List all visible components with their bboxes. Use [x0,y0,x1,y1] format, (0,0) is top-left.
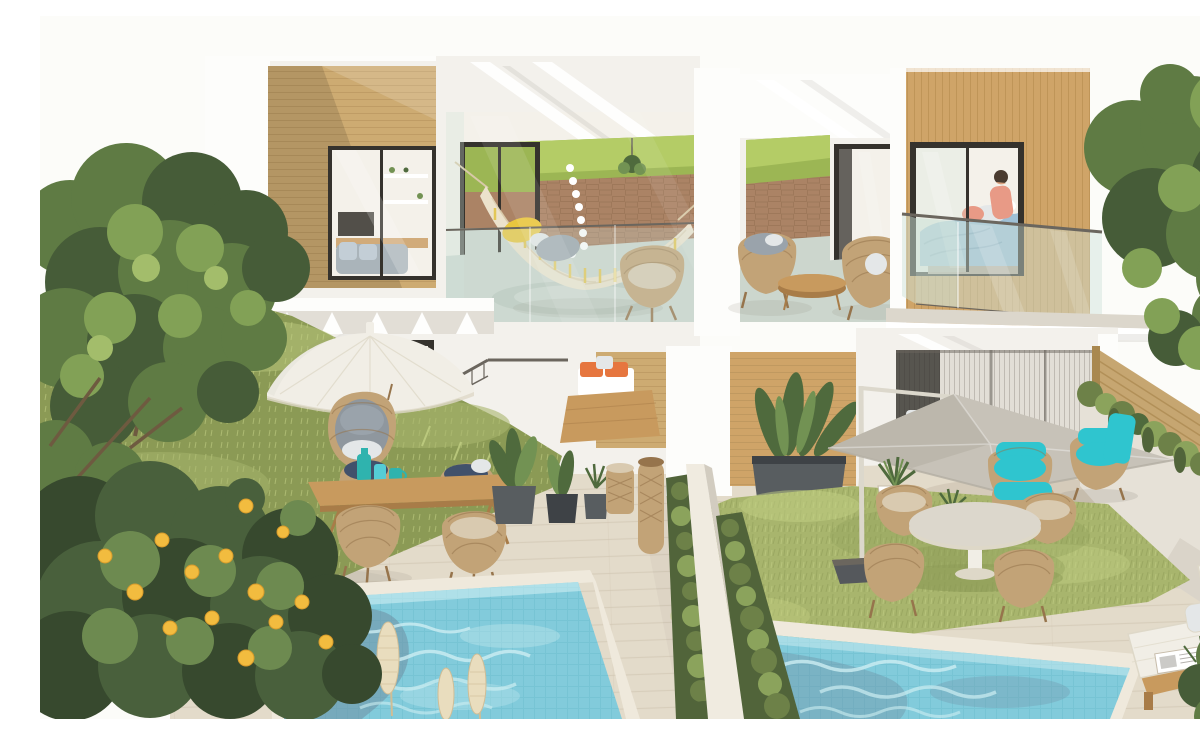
central-column-upper [694,68,740,336]
shelf [384,174,428,178]
left-balcony [436,56,700,322]
shelf [384,200,428,204]
bedroom-glass-balustrade [902,214,1102,320]
wicker-stool [606,463,634,514]
living-room-window [328,146,436,280]
rattan-floor-lamp [638,457,664,554]
villa-rendering-canvas: Photorealistic exterior rendering of twi… [40,16,1200,719]
villa-rendering: Photorealistic exterior rendering of twi… [40,16,1200,719]
